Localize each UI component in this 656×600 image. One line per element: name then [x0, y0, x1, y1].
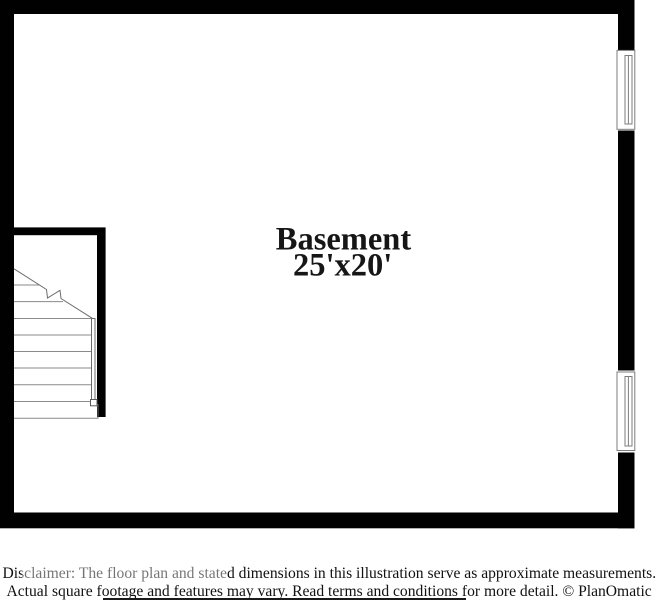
- svg-text:25'x20': 25'x20': [293, 248, 392, 284]
- svg-text:Actual square footage and feat: Actual square footage and features may v…: [7, 583, 652, 600]
